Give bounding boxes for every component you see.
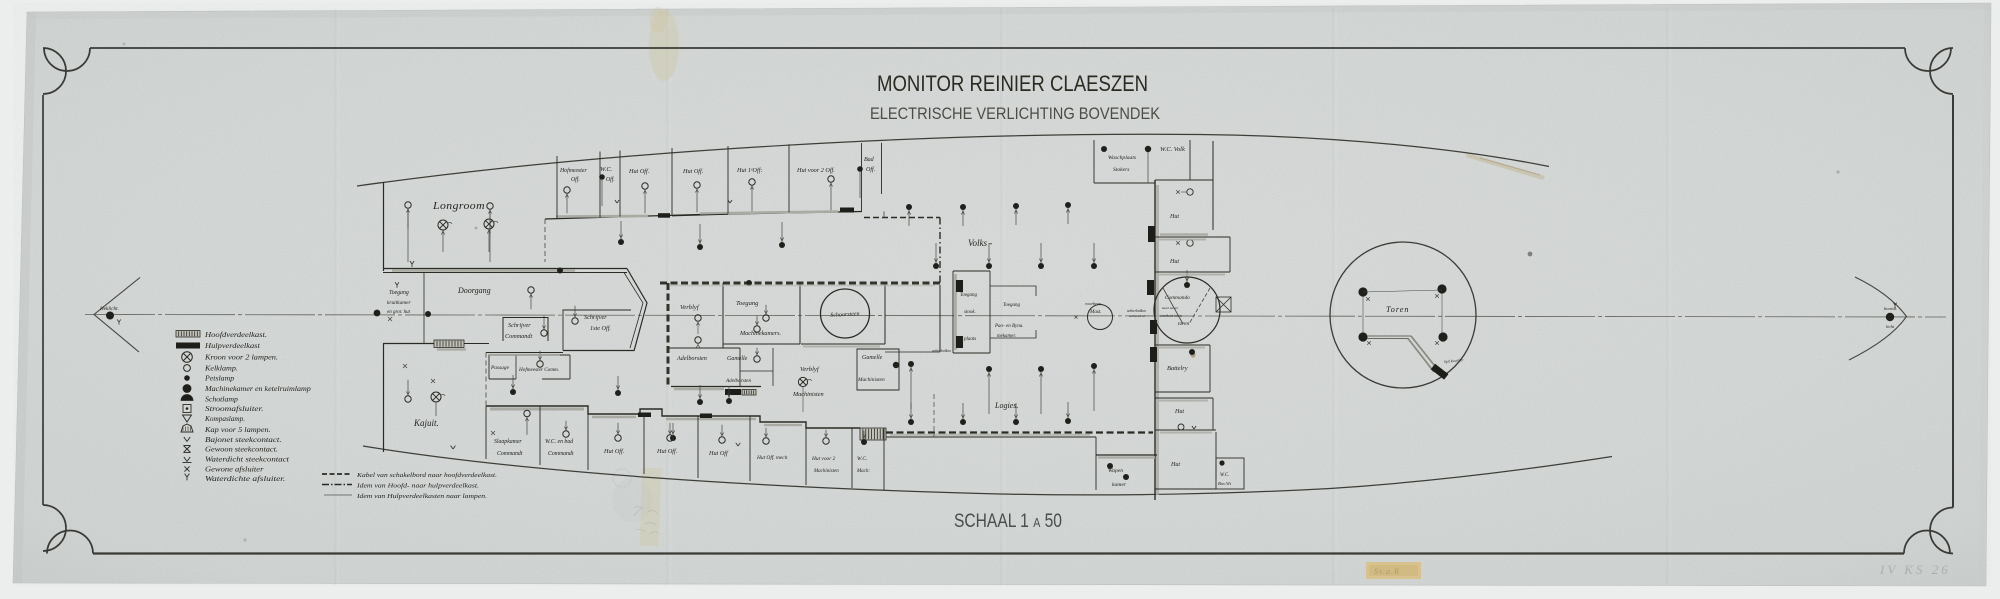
svg-text:Waterdicht steekcontact: Waterdicht steekcontact: [205, 457, 290, 464]
svg-text:Gewone afsluiter: Gewone afsluiter: [205, 467, 264, 474]
svg-text:achterbalkon: achterbalkon: [1127, 309, 1146, 313]
svg-text:Kabel van schakelbord naar hoo: Kabel van schakelbord naar hoofdverdeelk…: [356, 472, 498, 479]
svg-text:Volks -: Volks -: [968, 238, 992, 248]
svg-text:Hut: Hut: [1174, 409, 1184, 415]
svg-text:Waschplaats: Waschplaats: [1108, 155, 1136, 161]
svg-text:Toegang: Toegang: [960, 293, 978, 298]
svg-text:Kajuit.: Kajuit.: [413, 418, 439, 428]
svg-text:Bad: Bad: [864, 157, 875, 163]
svg-text:Kompaslamp.: Kompaslamp.: [204, 416, 245, 423]
svg-text:Schotlamp: Schotlamp: [205, 397, 239, 404]
svg-text:Hulpverdeelkast: Hulpverdeelkast: [204, 343, 261, 350]
svg-text:Mach:: Mach:: [856, 469, 870, 474]
svg-text:Doorgang: Doorgang: [457, 286, 491, 295]
svg-text:Idem van Hoofd- naar hulpverde: Idem van Hoofd- naar hulpverdeelkast.: [356, 483, 480, 490]
svg-text:Schrijver: Schrijver: [584, 314, 607, 321]
svg-text:Hofmeester: Hofmeester: [559, 167, 587, 174]
svg-text:Schrijver: Schrijver: [508, 322, 531, 329]
svg-text:Kap voor 5 lampen.: Kap voor 5 lampen.: [204, 427, 271, 434]
svg-text:Battelry: Battelry: [1167, 365, 1188, 372]
svg-text:Hut Off.: Hut Off.: [603, 448, 624, 455]
svg-text:Gewoon steekcontact.: Gewoon steekcontact.: [205, 447, 278, 454]
svg-text:Idem van Hulpverdeelkasten naa: Idem van Hulpverdeelkasten naar lampen.: [356, 493, 488, 500]
svg-text:MONITOR REINIER CLAESZEN: MONITOR REINIER CLAESZEN: [877, 71, 1148, 96]
svg-text:Commandt: Commandt: [497, 451, 523, 457]
svg-text:Hut Off: Hut Off: [708, 450, 729, 457]
svg-text:Commando: Commando: [1165, 295, 1190, 301]
svg-text:Machinisten: Machinisten: [813, 469, 839, 474]
svg-text:1ste Off.: 1ste Off.: [590, 325, 611, 332]
svg-text:Passage: Passage: [490, 365, 510, 371]
svg-text:Hut voor 2: Hut voor 2: [811, 456, 836, 462]
svg-text:Logies.: Logies.: [994, 401, 1018, 410]
svg-text:Toegang: Toegang: [389, 290, 409, 296]
svg-text:voorheen toren: voorheen toren: [1160, 314, 1182, 318]
svg-text:W.C.: W.C.: [857, 456, 867, 462]
svg-text:Pao- en Byna.: Pao- en Byna.: [994, 324, 1023, 329]
svg-text:achteruit al: achteruit al: [1129, 314, 1145, 318]
svg-text:Hut Off.: Hut Off.: [628, 168, 649, 175]
svg-text:Machinisten: Machinisten: [857, 377, 885, 383]
svg-text:Adelborsten: Adelborsten: [725, 378, 751, 384]
svg-text:toren: toren: [1178, 321, 1189, 327]
svg-text:Hut Off.: Hut Off.: [682, 168, 703, 175]
svg-text:Gamelle: Gamelle: [727, 356, 748, 362]
svg-text:Waterdichte afsluiter.: Waterdichte afsluiter.: [205, 476, 286, 483]
svg-text:Hut: Hut: [1170, 462, 1180, 468]
svg-text:Hut voor 2 Off.: Hut voor 2 Off.: [796, 167, 835, 174]
svg-text:Petslamp: Petslamp: [204, 376, 235, 383]
svg-text:stook.: stook.: [964, 310, 976, 315]
svg-text:Kroon voor 2 lampen.: Kroon voor 2 lampen.: [204, 355, 279, 362]
svg-text:Hut: Hut: [1169, 259, 1179, 265]
svg-text:W.C. Volk: W.C. Volk: [1160, 146, 1185, 153]
svg-text:Hoofdverdeelkast.: Hoofdverdeelkast.: [204, 332, 268, 339]
svg-text:Heklicht.: Heklicht.: [99, 306, 119, 312]
svg-text:Off.: Off.: [866, 166, 875, 173]
svg-text:Kelklamp.: Kelklamp.: [204, 366, 238, 373]
svg-text:Sv.a.R: Sv.a.R: [1374, 567, 1400, 576]
svg-text:ELECTRISCHE VERLICHTING BOVEND: ELECTRISCHE VERLICHTING BOVENDEK: [870, 104, 1161, 123]
svg-text:Hut 1ᵉOff:: Hut 1ᵉOff:: [736, 167, 763, 174]
svg-text:Commandt: Commandt: [505, 333, 532, 340]
svg-text:en gror. hut: en gror. hut: [387, 310, 411, 315]
svg-text:Bajonet steekcontact.: Bajonet steekcontact.: [205, 437, 282, 444]
svg-text:Gamelle: Gamelle: [862, 355, 883, 361]
svg-text:IV KS 26: IV KS 26: [1879, 562, 1951, 577]
svg-text:Machinekamers.: Machinekamers.: [739, 330, 781, 337]
svg-text:Hut Off.: Hut Off.: [656, 448, 677, 455]
svg-text:mekamer.: mekamer.: [997, 334, 1016, 339]
svg-text:W.C. en bad: W.C. en bad: [545, 439, 573, 445]
svg-text:Slaapkamer: Slaapkamer: [494, 439, 522, 445]
svg-text:SCHAAL 1 A 50: SCHAAL 1 A 50: [954, 511, 1062, 532]
svg-text:Verblyf: Verblyf: [680, 304, 700, 311]
svg-text:Stroomafsluiter.: Stroomafsluiter.: [205, 406, 264, 413]
svg-text:licht: licht: [1886, 324, 1895, 329]
svg-text:kaart kamer: kaart kamer: [1162, 306, 1179, 310]
svg-text:Off.: Off.: [571, 176, 580, 183]
svg-text:voorheen: voorheen: [1085, 301, 1102, 306]
svg-text:Machinekamer en ketelruimlamp: Machinekamer en ketelruimlamp: [204, 386, 312, 393]
svg-text:Toren: Toren: [1386, 305, 1410, 314]
svg-text:Stokers: Stokers: [1113, 167, 1129, 173]
svg-text:plaats: plaats: [963, 337, 976, 342]
svg-text:Toegang: Toegang: [1003, 303, 1021, 308]
svg-text:Toegang: Toegang: [736, 300, 759, 307]
svg-text:Longroom: Longroom: [432, 201, 485, 212]
svg-text:Verblyf: Verblyf: [800, 366, 820, 373]
svg-text:Mast.: Mast.: [1089, 309, 1102, 315]
svg-text:Bov.Wt: Bov.Wt: [1218, 481, 1232, 486]
svg-text:Adelborsten: Adelborsten: [676, 355, 707, 362]
svg-text:Machinisten: Machinisten: [792, 391, 824, 398]
svg-text:kamer: kamer: [1112, 482, 1127, 488]
svg-text:Off.: Off.: [606, 176, 615, 183]
svg-text:W.C.: W.C.: [1220, 473, 1229, 478]
svg-text:Hut: Hut: [1169, 214, 1179, 220]
svg-text:Commandt: Commandt: [548, 451, 574, 457]
svg-text:W.C.: W.C.: [600, 166, 613, 173]
svg-text:Hut Off. mech: Hut Off. mech: [756, 454, 788, 461]
svg-text:kruitkamer: kruitkamer: [387, 300, 412, 306]
svg-text:achterbalkon: achterbalkon: [932, 349, 951, 353]
